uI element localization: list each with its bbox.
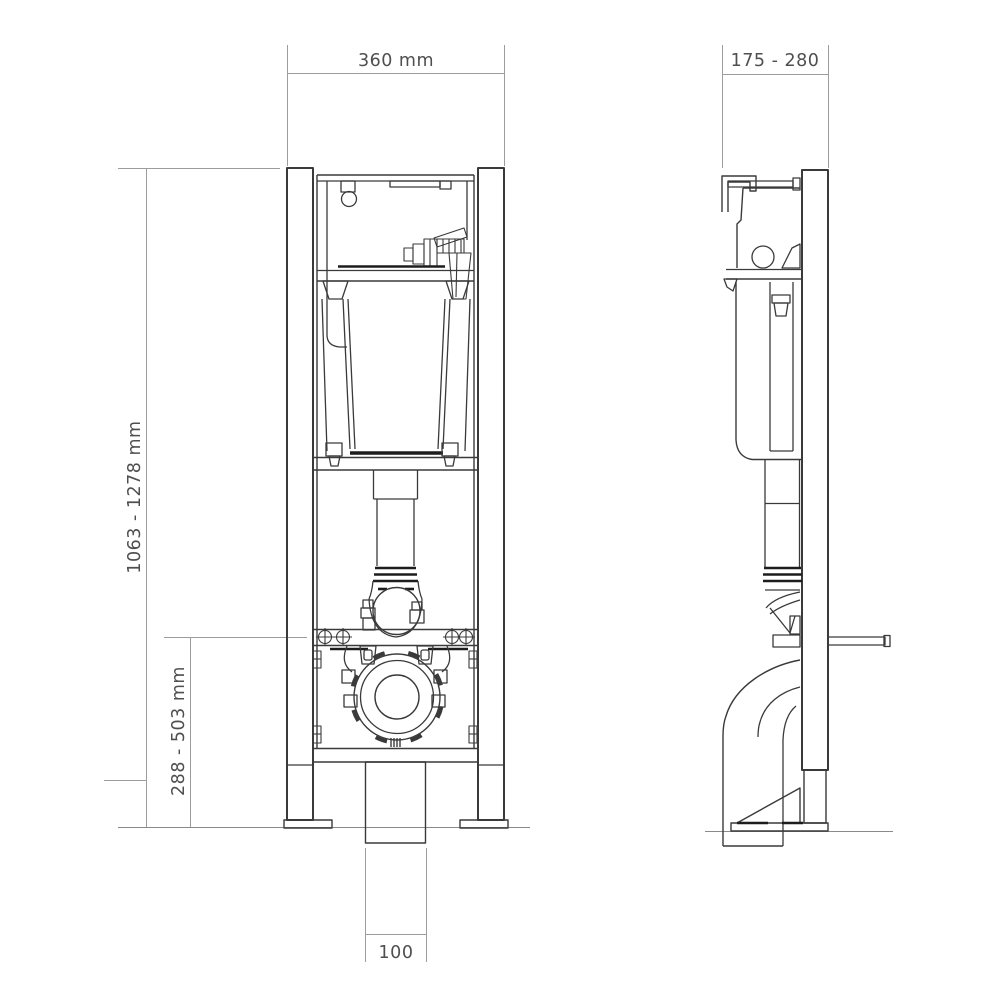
flush-bend (373, 588, 420, 635)
outlet-offset-label: 100 (379, 943, 414, 963)
flush-valve-seat (752, 246, 774, 268)
frame-depth-label: 175 - 280 (731, 51, 820, 71)
drain-outlet-box (366, 762, 426, 843)
bowl-mounting-rod (773, 635, 890, 647)
side-rail (802, 170, 828, 823)
side-view (722, 170, 890, 846)
cistern-tank (317, 267, 474, 454)
flush-pipe-front (361, 470, 424, 637)
drain-elbow (723, 660, 800, 846)
wc-outlet-flange (342, 643, 451, 751)
rail-clips (313, 651, 477, 743)
outlet-height-label: 288 - 503 mm (169, 666, 189, 796)
dimension-outlet-offset: 100 (366, 848, 427, 963)
flush-pipe-side (763, 460, 802, 635)
mounting-bar (313, 628, 478, 649)
wc-frame-technical-drawing: 360 mm 175 - 280 1063 - 1278 mm 288 - 50… (0, 0, 1000, 1000)
front-view (284, 168, 508, 843)
cistern-side-profile (724, 188, 802, 460)
technical-drawing-page: 360 mm 175 - 280 1063 - 1278 mm 288 - 50… (0, 0, 1000, 1000)
cistern-protection-box (317, 175, 474, 748)
fill-valve (404, 228, 471, 299)
dimension-frame-depth: 175 - 280 (723, 45, 829, 168)
frame-width-label: 360 mm (358, 51, 434, 71)
dimension-frame-width: 360 mm (288, 45, 505, 166)
frame-height-label: 1063 - 1278 mm (125, 420, 145, 573)
dimension-frame-height: 1063 - 1278 mm (104, 168, 280, 827)
tank-support-bar (313, 443, 478, 470)
wall-anchor-bracket (722, 176, 800, 212)
water-supply-hole (342, 192, 357, 207)
side-foot (731, 770, 828, 831)
bottom-cross-member (313, 749, 478, 763)
dimension-outlet-height: 288 - 503 mm (164, 637, 307, 827)
